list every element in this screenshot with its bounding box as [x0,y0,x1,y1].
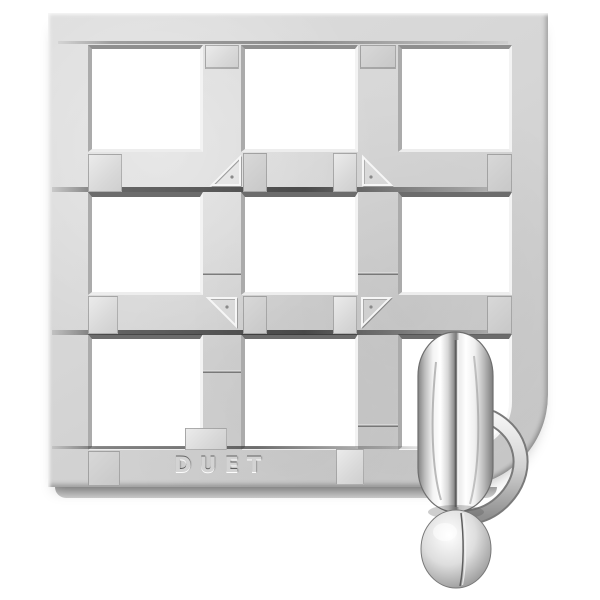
overlap-tab [243,153,267,192]
ring-knob [421,510,491,588]
overlap-tab [88,296,118,334]
grid-hole-r2c1 [88,192,203,295]
layer-seam-vbar [203,370,241,373]
layer-seam-vbar [203,272,241,275]
overlap-tab [336,449,364,485]
overlap-tab [243,296,267,334]
puzzle-photo: DUET [0,0,600,600]
grid-hole-r3c2 [241,334,358,450]
duet-ring [390,315,590,600]
overlap-tab [88,154,122,192]
overlap-tab [360,45,396,69]
grid-hole-r2c2 [241,192,358,295]
ring-loop [418,332,493,519]
grid-hole-r2c3 [398,192,512,295]
overlap-tab [487,154,512,192]
overlap-tab [333,153,357,192]
triangle-marker-icon [208,153,242,187]
overlap-tab [333,296,357,334]
brand-text: DUET [174,452,294,478]
layer-seam-vbar [358,272,398,275]
triangle-marker-icon [360,296,394,330]
layer-seam-bottom-bar [52,446,424,449]
triangle-marker-icon [361,153,395,187]
grid-hole-r1c2 [241,45,358,152]
overlap-tab [185,428,227,450]
overlap-tab [88,451,120,486]
triangle-marker-icon [204,296,238,330]
layer-seam-top [58,41,508,44]
grid-hole-r1c3 [398,45,512,152]
grid-hole-r1c1 [88,45,203,152]
overlap-tab [205,45,239,69]
